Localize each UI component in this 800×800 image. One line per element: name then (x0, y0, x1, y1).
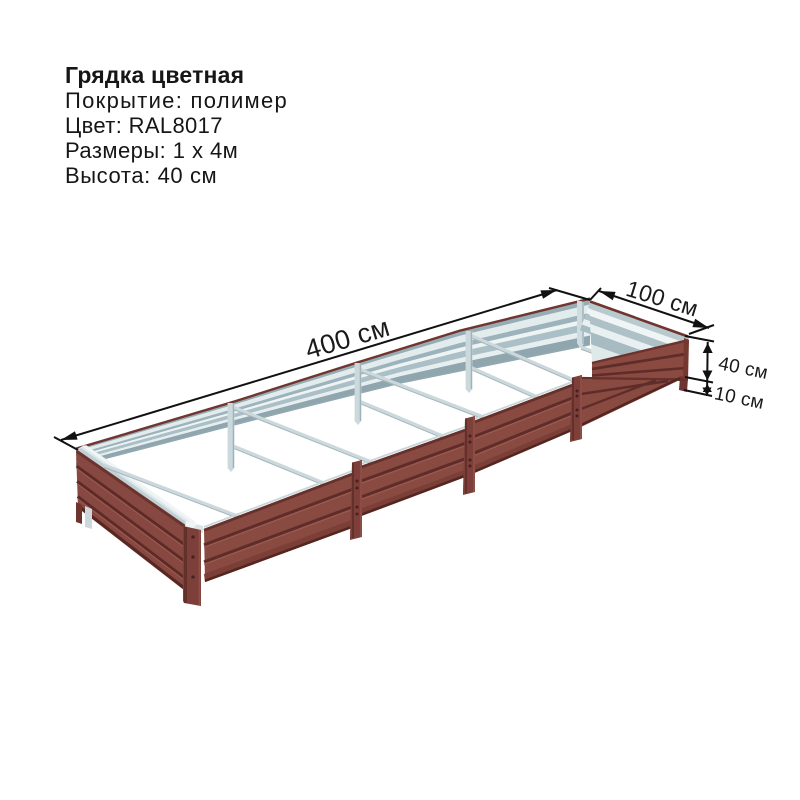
svg-text:10 см: 10 см (713, 383, 766, 414)
svg-text:40 см: 40 см (717, 353, 770, 384)
svg-text:100 см: 100 см (623, 275, 701, 321)
